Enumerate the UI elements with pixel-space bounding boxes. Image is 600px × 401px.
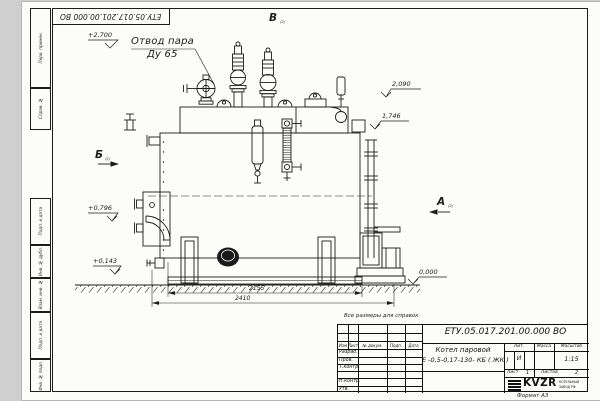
reference-note: Все размеры для справок [344, 313, 419, 319]
dimension-2155: 2155 [249, 285, 264, 292]
callout-steam-outlet-dn: Ду 65 [147, 49, 178, 60]
tb-header-data: Дата [405, 343, 422, 348]
margin-box-label: Инв. № подл. [38, 361, 43, 391]
tb-header-list: Лист [348, 343, 358, 348]
tb-role-razrab: Разраб. [339, 350, 358, 355]
view-label-v: В [269, 12, 277, 24]
tb-role-utv: Утв. [339, 387, 349, 392]
margin-box-sprav-no: Справ. № [30, 88, 51, 130]
view-ref-b: (2) [105, 157, 110, 161]
margin-box-label: Перв. примен. [38, 32, 43, 63]
corner-doc-number-stamp: ЕТУ.05.017.201.00.000 ВО [52, 8, 170, 25]
dimension-2410: 2410 [235, 295, 250, 302]
tb-role-prov: Пров. [339, 358, 353, 363]
tb-product-line1: Котел паровой [422, 346, 504, 354]
margin-box-label: Инв. № дубл. [38, 247, 43, 276]
elevation-mark-0143: +0,143 [93, 257, 117, 265]
tb-product-line2: Е -0,5-0,17-130- КБ ( ЖК ) [422, 356, 504, 364]
margin-box-label: Подп. и дата [38, 207, 43, 236]
margin-box-podp-data-2: Подп. и дата [30, 312, 51, 359]
margin-box-inv-dubl: Инв. № дубл. [30, 245, 51, 278]
elevation-mark-0000: 0,000 [419, 268, 438, 276]
view-ref-a: (2) [448, 204, 453, 208]
elevation-mark-0796: +0,796 [88, 204, 112, 212]
callout-steam-outlet: Отвод пара [131, 36, 194, 47]
tb-header-izm: Изм [338, 343, 348, 348]
tb-mass-header: Масса [534, 344, 554, 349]
elevation-mark-2700: +2,700 [88, 31, 112, 39]
margin-box-vzam-inv: Взам. инв. № [30, 278, 51, 312]
corner-doc-number: ЕТУ.05.017.201.00.000 ВО [60, 12, 161, 21]
tb-lit-header: Лит. [504, 344, 534, 349]
tb-header-doc: № докум. [358, 343, 387, 348]
tb-doc-number: ЕТУ.05.017.201.00.000 ВО [422, 327, 589, 337]
kvzr-logo-text: KVZR [523, 377, 557, 389]
title-block: ЕТУ.05.017.201.00.000 ВО Котел паровой Е… [337, 324, 588, 392]
margin-box-label: Подп. и дата [38, 321, 43, 350]
tb-sheets-value: 2 [575, 370, 578, 376]
tb-header-podp: Подп. [387, 343, 405, 348]
tb-scale-value: 1:15 [554, 355, 589, 363]
margin-box-label: Взам. инв. № [38, 280, 43, 309]
tb-role-tkontr: Т.контр. [339, 365, 360, 370]
margin-box-label: Справ. № [38, 98, 43, 119]
tb-sheet-label: Лист [507, 370, 518, 375]
margin-box-podp-data-1: Подп. и дата [30, 198, 51, 245]
kvzr-logo-sub1: КОТЕЛЬНЫЙ [559, 380, 579, 384]
tb-sheet-value: 1 [526, 370, 529, 376]
elevation-mark-2090: 2,090 [392, 80, 411, 88]
elevation-mark-1746: 1,746 [382, 112, 401, 120]
tb-lit-value: И [514, 355, 524, 362]
tb-scale-header: Масштаб [554, 344, 589, 349]
kvzr-logo-icon [508, 380, 521, 391]
view-label-a: А [437, 196, 445, 208]
kvzr-logo-sub2: ЗАВОД РФ [559, 385, 576, 389]
margin-box-perv-primen: Перв. примен. [30, 8, 51, 88]
tb-sheets-label: Листов [541, 370, 558, 375]
view-ref-v: (2) [280, 20, 285, 24]
tb-role-nkontr: Н.контр. [339, 379, 360, 384]
format-label: Формат А3 [517, 393, 548, 399]
margin-box-inv-podl: Инв. № подл. [30, 359, 51, 392]
view-label-b: Б [95, 149, 103, 161]
drawing-sheet-page: { "sheet": { "corner_stamp": "ЕТУ.05.017… [0, 0, 600, 400]
